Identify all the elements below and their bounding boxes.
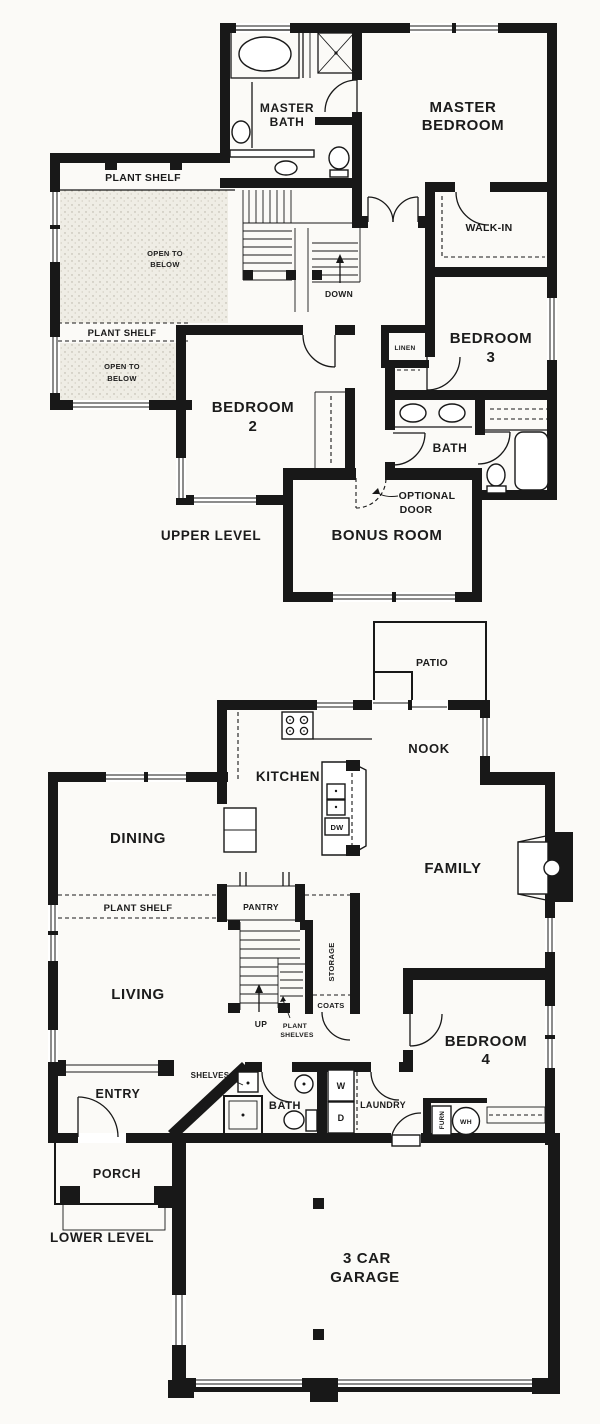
optional-door-leader (372, 488, 398, 497)
master-tub (239, 37, 291, 71)
label-walk-in: WALK-IN (465, 222, 512, 234)
label-storage: STORAGE (327, 942, 336, 981)
label-plant-shelf-lower: PLANT SHELF (104, 903, 173, 914)
label-plant-shelf-upper: PLANT SHELF (105, 172, 181, 184)
label-master-bedroom-1: MASTER (430, 99, 497, 116)
master-bath-vanity (230, 150, 314, 157)
label-open-below-2b: BELOW (107, 374, 137, 383)
label-master-bedroom-2: BEDROOM (422, 117, 505, 134)
label-up: UP (255, 1019, 267, 1029)
label-kitchen: KITCHEN (256, 769, 320, 784)
label-bedroom2-2: 2 (249, 418, 258, 435)
label-lower-level: LOWER LEVEL (50, 1230, 154, 1245)
label-linen: LINEN (395, 345, 416, 352)
upper-level-plan: MASTER BATH MASTER BEDROOM PLANT SHELF O… (50, 23, 557, 602)
label-bath-lower: BATH (269, 1100, 301, 1112)
label-optional: OPTIONAL (399, 490, 456, 502)
label-open-below-2a: OPEN TO (104, 362, 140, 371)
label-dryer: D (338, 1113, 345, 1123)
label-coats: COATS (317, 1001, 344, 1010)
porch-post-2 (154, 1186, 172, 1204)
label-nook: NOOK (408, 741, 449, 756)
label-master-bath-1: MASTER (260, 101, 314, 115)
label-bedroom3-2: 3 (487, 349, 496, 366)
garage-post-2 (313, 1329, 324, 1340)
label-bedroom4-1: BEDROOM (445, 1033, 528, 1050)
garage-post-1 (313, 1198, 324, 1209)
stove (282, 712, 313, 739)
bath-sink-2 (439, 404, 465, 422)
label-garage-1: 3 CAR (343, 1250, 391, 1267)
label-furn: FURN (439, 1111, 446, 1130)
label-pantry: PANTRY (243, 902, 279, 912)
label-bonus-room: BONUS ROOM (332, 527, 443, 544)
label-master-bath-2: BATH (270, 115, 305, 129)
label-laundry: LAUNDRY (360, 1100, 406, 1110)
label-plant-shelves-1: PLANT (283, 1023, 308, 1030)
master-toilet (329, 147, 349, 169)
master-bath-sink-1 (232, 121, 250, 143)
fireplace-flue (544, 860, 560, 876)
floor-plan-page: MASTER BATH MASTER BEDROOM PLANT SHELF O… (0, 0, 600, 1424)
label-wh: WH (460, 1119, 472, 1126)
label-bedroom3-1: BEDROOM (450, 330, 533, 347)
down-arrow-head (336, 254, 344, 263)
porch-step (63, 1204, 165, 1230)
label-optional-door: DOOR (400, 504, 433, 516)
bath-sink-1 (400, 404, 426, 422)
label-plant-shelf-mid: PLANT SHELF (88, 328, 157, 339)
bath-toilet-lower (284, 1111, 304, 1129)
label-living: LIVING (111, 986, 165, 1003)
lower-level-plan: PATIO NOOK KITCHEN DW DINING FAMILY PLAN… (48, 622, 573, 1402)
label-dining: DINING (110, 830, 166, 847)
lower-doors (78, 1012, 442, 1146)
label-patio: PATIO (416, 657, 448, 669)
label-bedroom4-2: 4 (482, 1051, 491, 1068)
lower-stairs (240, 922, 305, 1018)
label-garage-2: GARAGE (330, 1269, 399, 1286)
label-plant-shelves-2: SHELVES (280, 1032, 313, 1039)
label-washer: W (337, 1081, 346, 1091)
label-open-below-1b: BELOW (150, 260, 180, 269)
open-to-below-areas (58, 190, 228, 400)
label-porch: PORCH (93, 1167, 141, 1181)
label-bath-upper: BATH (433, 441, 468, 455)
label-entry: ENTRY (96, 1087, 141, 1101)
master-bath-sink-2 (275, 161, 297, 175)
porch-post-1 (60, 1186, 80, 1204)
label-upper-level: UPPER LEVEL (161, 528, 261, 543)
bath-tub (515, 432, 548, 490)
label-down: DOWN (325, 289, 353, 299)
floor-plan-svg: MASTER BATH MASTER BEDROOM PLANT SHELF O… (0, 0, 600, 1424)
label-family: FAMILY (424, 860, 481, 877)
label-open-below-1a: OPEN TO (147, 249, 183, 258)
label-bedroom2-1: BEDROOM (212, 399, 295, 416)
lower-walls (48, 700, 573, 1402)
label-dw: DW (330, 823, 344, 832)
label-shelves: SHELVES (191, 1071, 230, 1080)
bath-toilet (487, 464, 505, 486)
optional-door-arc (356, 478, 386, 508)
entry-opening (66, 1065, 158, 1072)
